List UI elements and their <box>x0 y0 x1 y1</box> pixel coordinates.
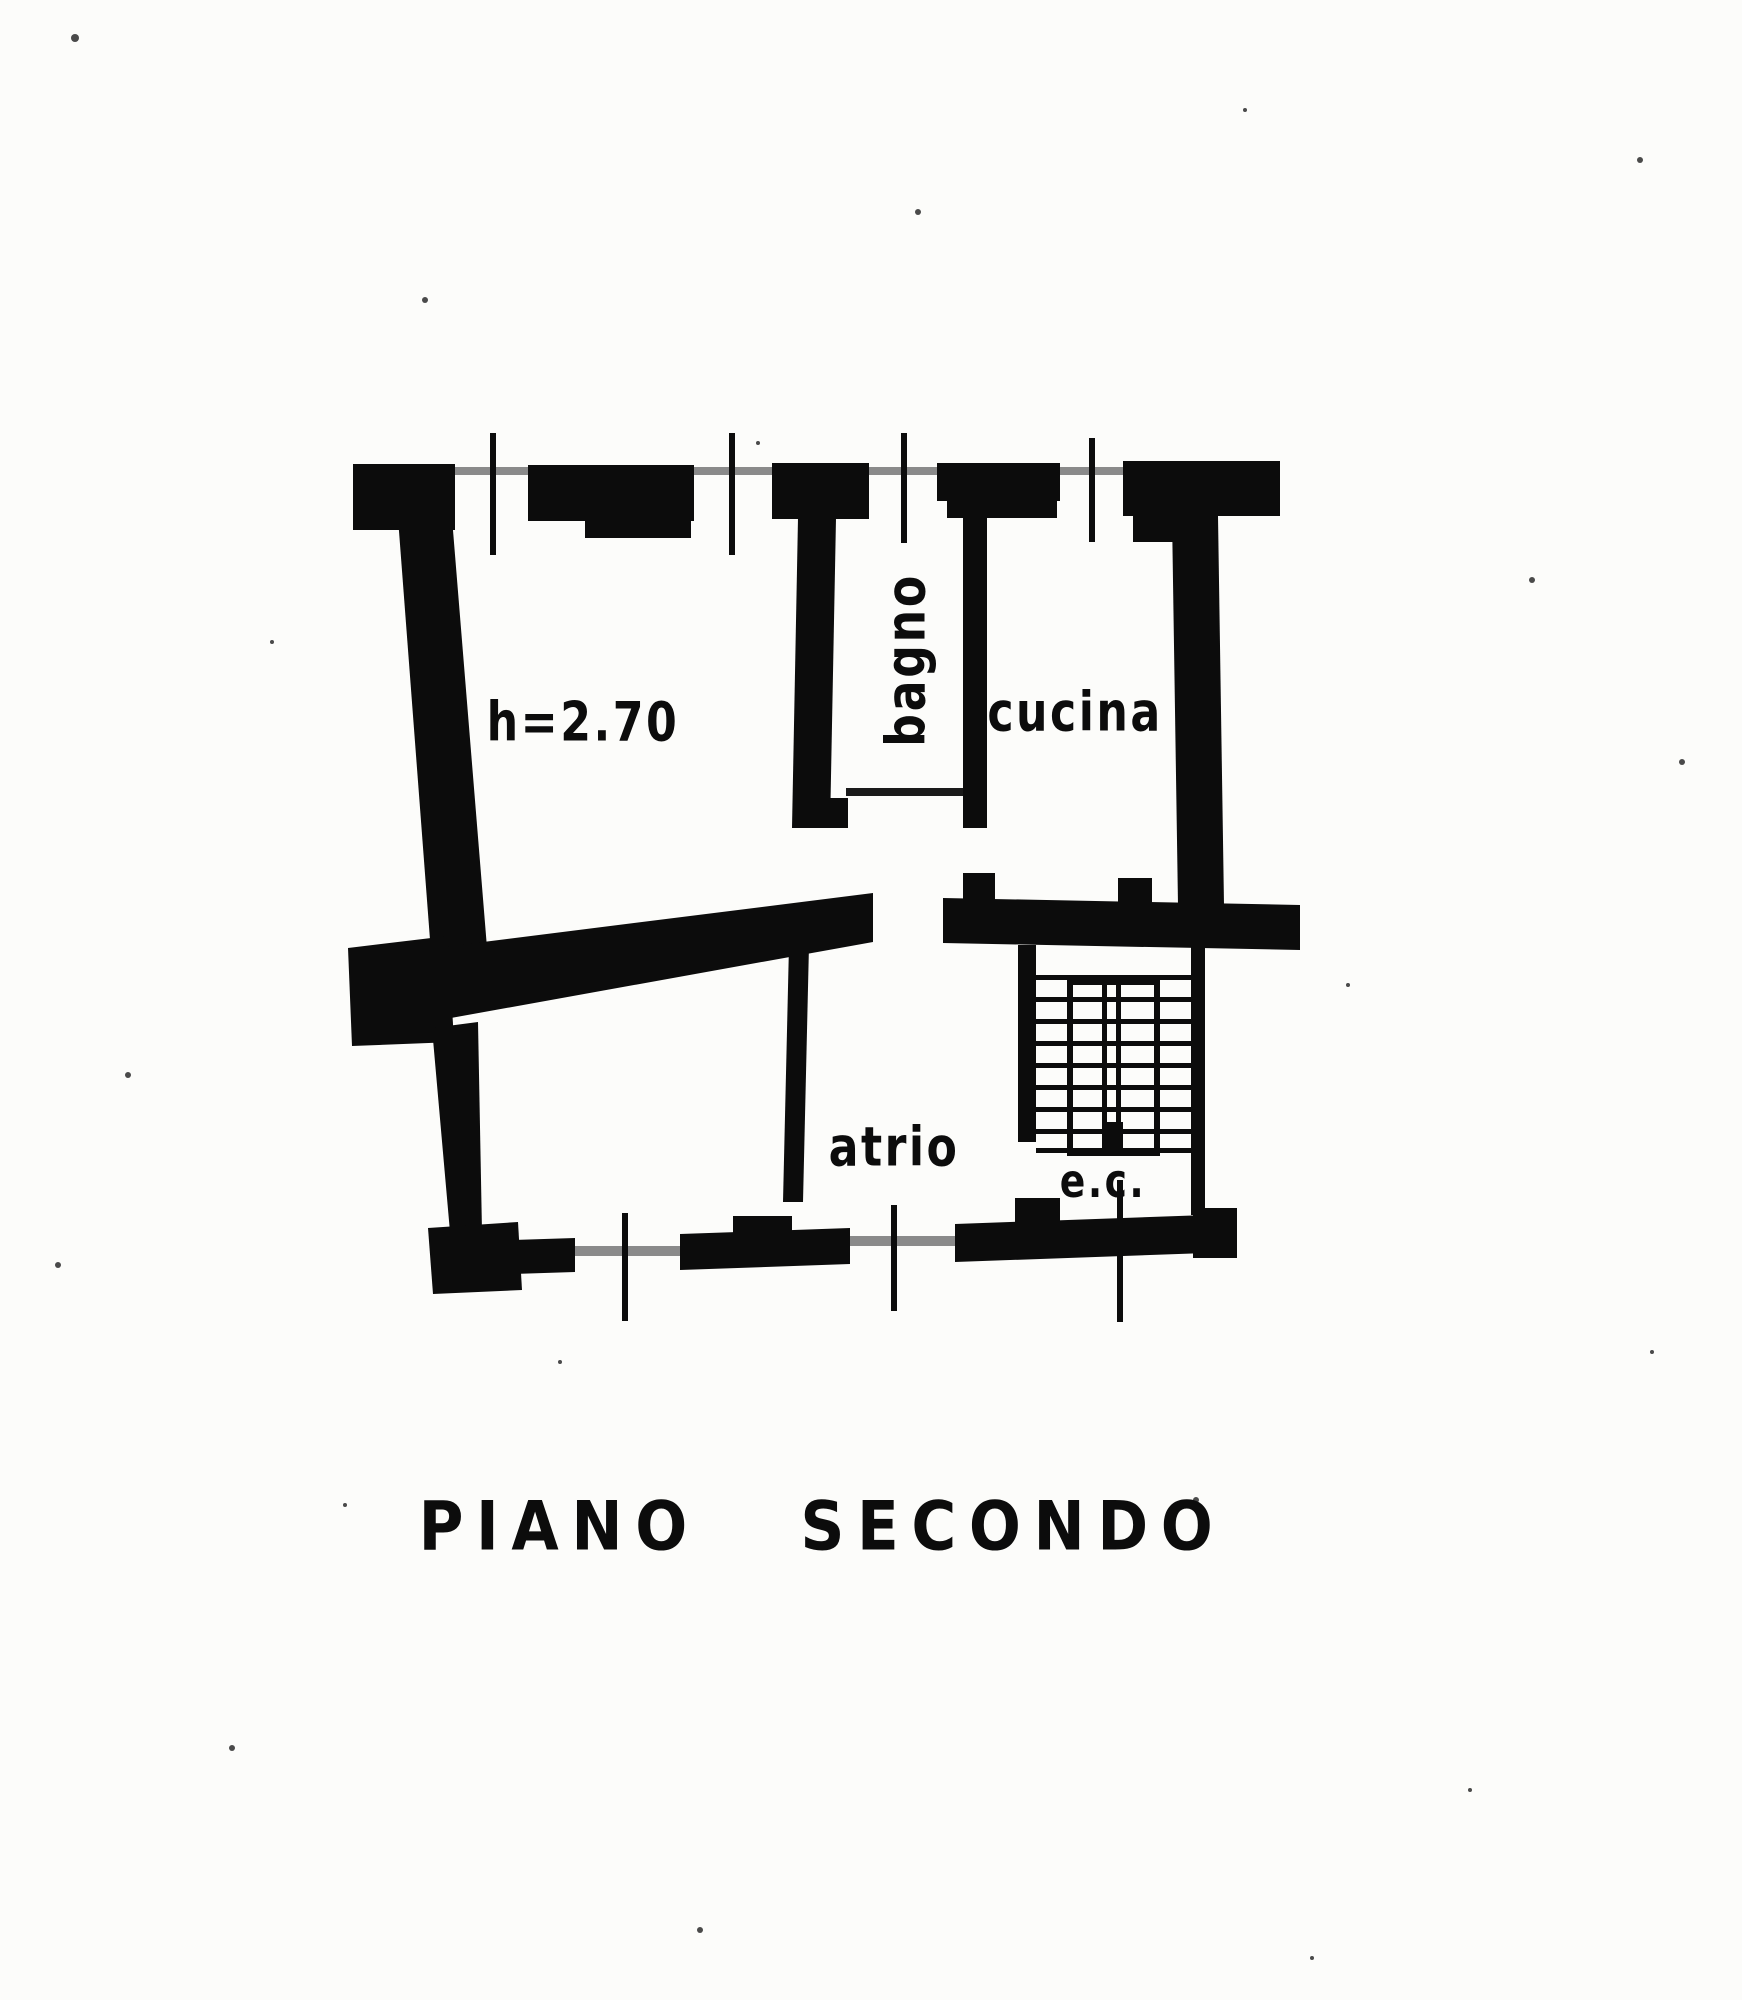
left-exterior-wall-lower <box>432 1022 482 1232</box>
bathroom-left-wall <box>792 518 848 828</box>
room-label-hall: atrio <box>829 1116 960 1179</box>
kitchen-left-wall <box>963 505 987 828</box>
floorplan-drawing <box>0 0 1742 2000</box>
room-label-main-height: h=2.70 <box>487 691 680 754</box>
room-label-stairwell: e.c. <box>1060 1154 1146 1208</box>
floorplan-title: PIANO SECONDO <box>419 1488 1226 1567</box>
room-label-kitchen: cucina <box>987 681 1162 744</box>
room-label-bathroom: bagno <box>875 573 938 747</box>
scan-noise <box>55 34 1685 1960</box>
scanned-floorplan-page: h=2.70 bagno cucina atrio e.c. PIANO SEC… <box>0 0 1742 2000</box>
bottom-exterior-wall <box>428 1198 1235 1294</box>
middle-wall-right <box>943 873 1300 950</box>
left-exterior-wall-upper <box>398 518 488 966</box>
right-exterior-wall <box>1172 516 1224 905</box>
hall-partition-wall <box>783 945 809 1202</box>
